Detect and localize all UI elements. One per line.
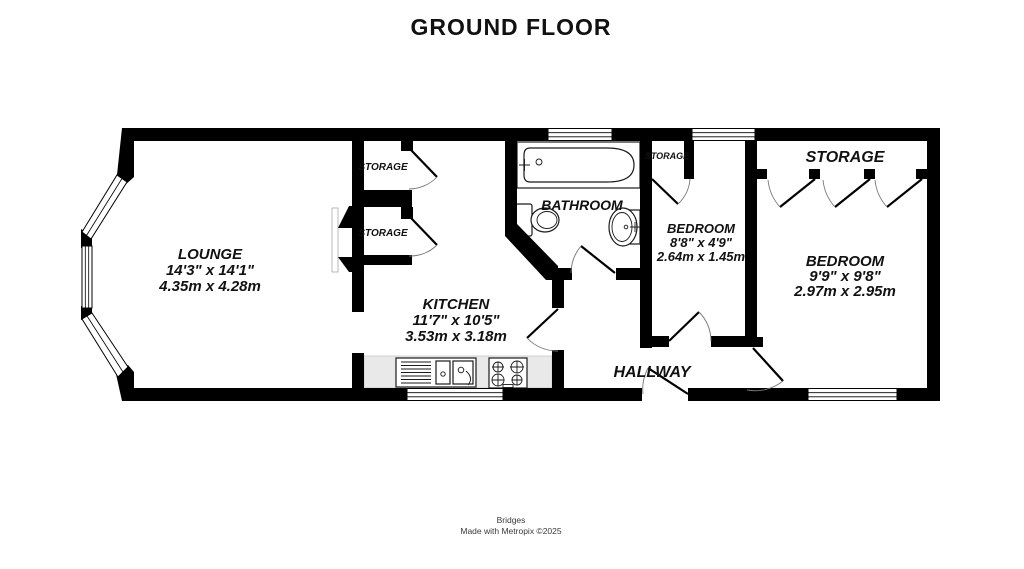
- bathroom-window: [548, 129, 612, 141]
- bathroom-label: BATHROOM: [541, 197, 623, 213]
- closet-door-2: [823, 179, 870, 207]
- storage-closet-2-door: [409, 218, 437, 256]
- floor-plan-page: GROUND FLOOR LOUNGE 14'3" x 14'1" 4.35m …: [0, 0, 1024, 569]
- room-label-kitchen: KITCHEN: [423, 296, 491, 313]
- bedroom-small-door: [669, 312, 711, 341]
- footer-credit: Made with Metropix ©2025: [460, 526, 562, 536]
- storage-closet-1-label: STORAGE: [358, 162, 408, 173]
- room-dims-metric-bedroom-small: 2.64m x 1.45m: [656, 249, 746, 264]
- closet-door-1: [768, 179, 815, 207]
- room-dims-metric-lounge: 4.35m x 4.28m: [158, 278, 261, 295]
- room-dims-imperial-kitchen: 11'7" x 10'5": [413, 312, 501, 329]
- room-label-lounge: LOUNGE: [178, 246, 243, 263]
- hallway-label: HALLWAY: [613, 364, 691, 381]
- room-dims-metric-kitchen: 3.53m x 3.18m: [405, 328, 507, 345]
- hob: [489, 358, 527, 388]
- floor-plan-svg: GROUND FLOOR LOUNGE 14'3" x 14'1" 4.35m …: [0, 0, 1024, 569]
- wash-basin: [609, 208, 640, 246]
- kitchen-door: [527, 309, 558, 351]
- kitchen-sink: [396, 358, 476, 387]
- kitchen-window: [407, 389, 503, 401]
- bedroom-large-label-group: BEDROOM 9'9" x 9'8" 2.97m x 2.95m: [793, 253, 896, 300]
- bathtub: [517, 142, 640, 188]
- storage-closet-2-label: STORAGE: [358, 228, 408, 239]
- bedroom-large-door: [747, 348, 783, 391]
- bedroom-small-label-group: BEDROOM 8'8" x 4'9" 2.64m x 1.45m: [656, 221, 746, 264]
- footer-brand: Bridges: [497, 515, 526, 525]
- room-dims-imperial-lounge: 14'3" x 14'1": [166, 262, 255, 279]
- room-dims-imperial-bedroom-small: 8'8" x 4'9": [670, 235, 733, 250]
- footer: Bridges Made with Metropix ©2025: [460, 515, 562, 536]
- kitchen-label-group: KITCHEN 11'7" x 10'5" 3.53m x 3.18m: [405, 296, 507, 345]
- bay-window: [82, 175, 128, 377]
- room-label-bedroom-small: BEDROOM: [667, 221, 736, 236]
- bedroom-small-window: [692, 129, 755, 141]
- bedroom-large-window: [808, 389, 897, 401]
- lounge-label-group: LOUNGE 14'3" x 14'1" 4.35m x 4.28m: [158, 246, 261, 295]
- closet-door-3: [875, 179, 922, 207]
- page-title: GROUND FLOOR: [410, 14, 611, 40]
- bathroom-door: [571, 246, 615, 273]
- storage-bedroom-large-label: STORAGE: [806, 149, 886, 166]
- storage-closet-1-door: [409, 150, 437, 189]
- room-dims-metric-bedroom-large: 2.97m x 2.95m: [793, 283, 896, 300]
- storage-bedroom-small-label: STORAGE: [645, 151, 690, 161]
- bedroom-small-storage-door: [652, 179, 690, 204]
